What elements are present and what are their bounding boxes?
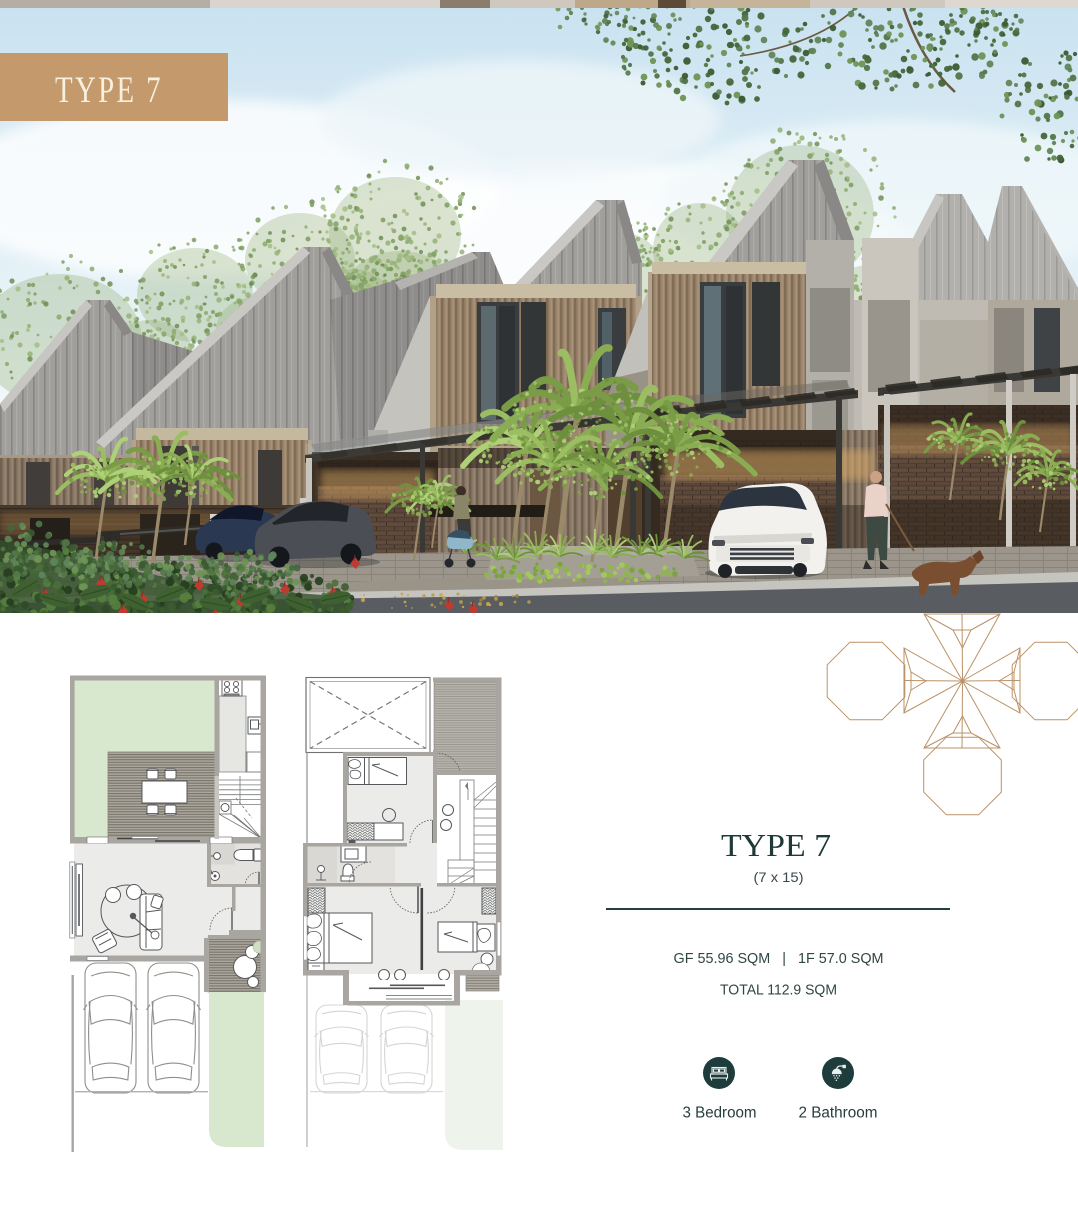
svg-text:2 Bathroom: 2 Bathroom	[799, 1105, 878, 1122]
svg-text:(7 x 15): (7 x 15)	[754, 870, 804, 885]
svg-text:3 Bedroom: 3 Bedroom	[683, 1105, 757, 1122]
svg-text:TOTAL 112.9 SQM: TOTAL 112.9 SQM	[720, 983, 837, 999]
svg-text:TYPE 7: TYPE 7	[721, 828, 831, 863]
svg-text:GF 55.96 SQM | 1F 57.0 SQM: GF 55.96 SQM | 1F 57.0 SQM	[674, 951, 884, 967]
